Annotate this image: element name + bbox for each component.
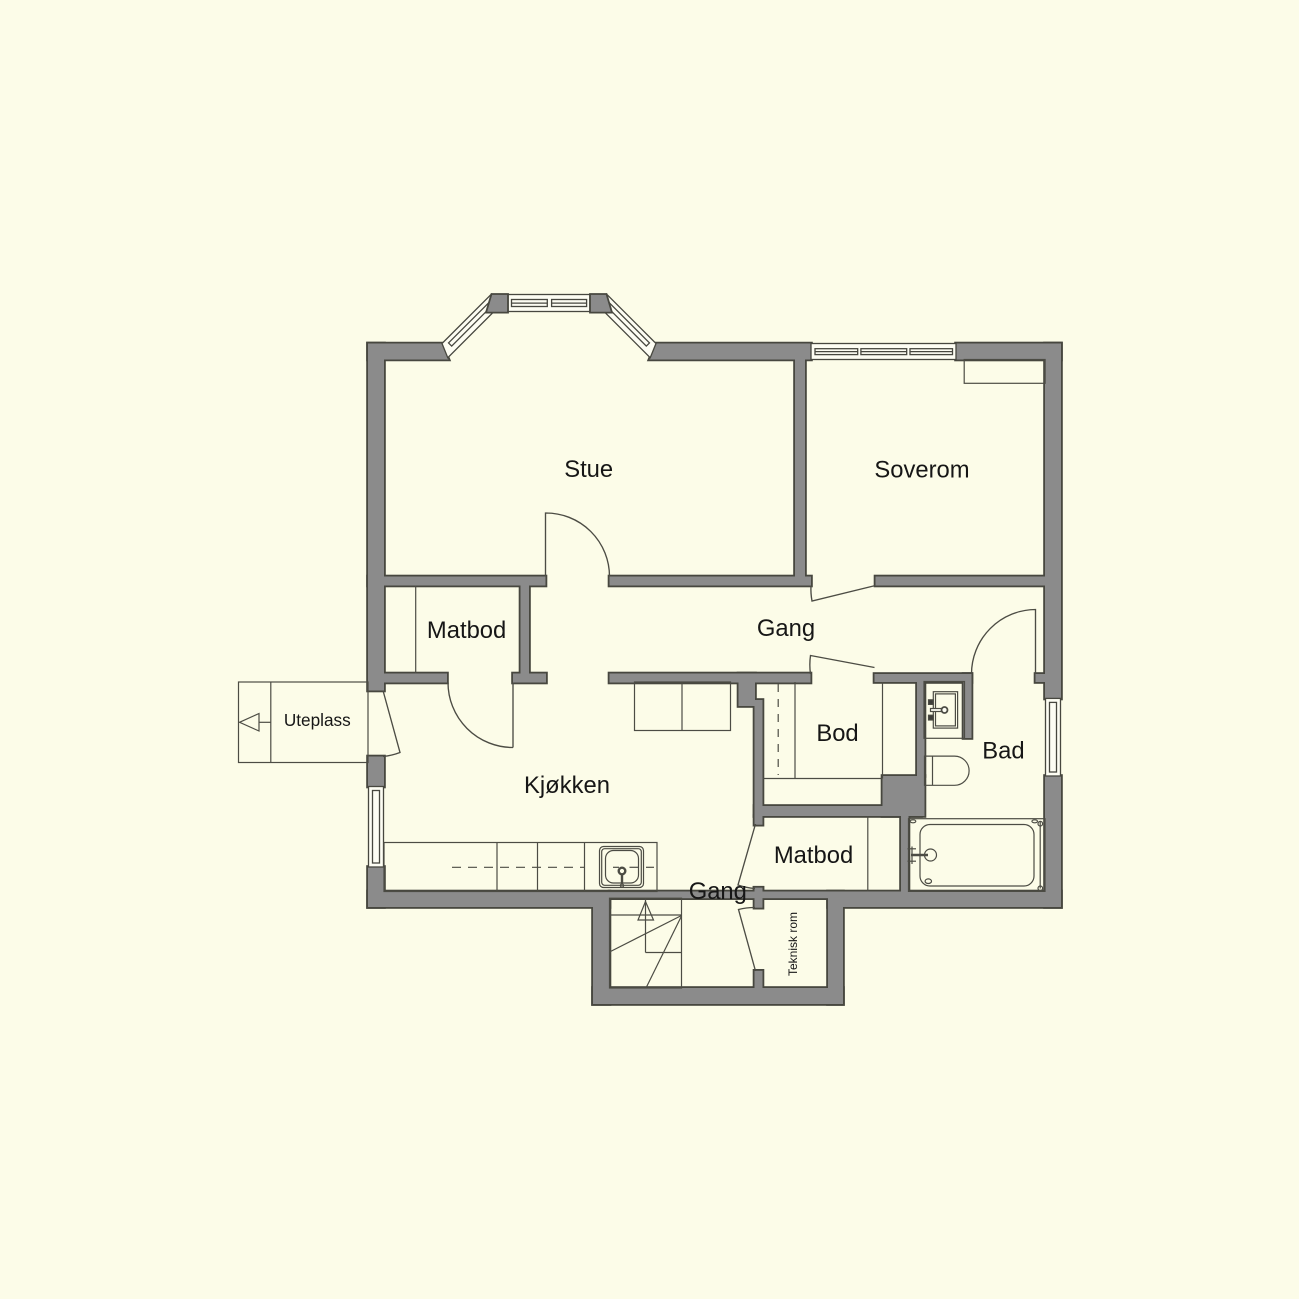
svg-text:Uteplass: Uteplass	[284, 710, 351, 730]
svg-text:Bad: Bad	[982, 738, 1024, 765]
svg-text:Matbod: Matbod	[427, 617, 506, 644]
svg-text:Teknisk rom: Teknisk rom	[786, 912, 800, 976]
svg-text:Matbod: Matbod	[774, 842, 853, 869]
svg-text:Gang: Gang	[757, 615, 815, 642]
svg-text:Gang: Gang	[689, 878, 747, 905]
svg-text:Stue: Stue	[564, 456, 613, 483]
svg-text:Bod: Bod	[816, 720, 858, 747]
svg-text:Kjøkken: Kjøkken	[524, 772, 610, 799]
svg-text:Soverom: Soverom	[874, 456, 969, 483]
